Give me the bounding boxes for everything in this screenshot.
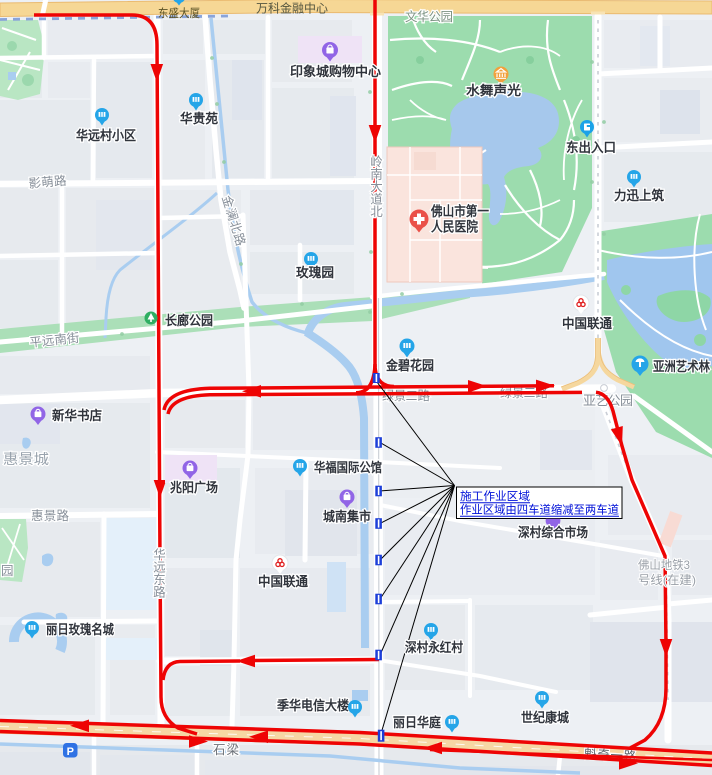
- svg-text:P: P: [67, 746, 74, 758]
- svg-text:东盛大厦: 东盛大厦: [158, 6, 200, 20]
- svg-text:园: 园: [1, 564, 14, 578]
- svg-text:金碧花园: 金碧花园: [385, 358, 434, 373]
- svg-text:华福国际公馆: 华福国际公馆: [314, 460, 382, 475]
- svg-text:华远东路: 华远东路: [151, 547, 165, 599]
- svg-text:丽日玫瑰名城: 丽日玫瑰名城: [46, 622, 114, 637]
- svg-text:亚洲艺术林: 亚洲艺术林: [653, 359, 710, 374]
- svg-text:水舞声光: 水舞声光: [466, 83, 521, 98]
- svg-text:东出入口: 东出入口: [566, 140, 616, 155]
- svg-text:新华书店: 新华书店: [52, 408, 102, 423]
- svg-text:深村永红村: 深村永红村: [405, 640, 463, 655]
- svg-text:中国联通: 中国联通: [562, 316, 612, 331]
- svg-text:施工作业区域: 施工作业区域: [460, 490, 530, 503]
- svg-text:惠景城: 惠景城: [3, 451, 49, 467]
- svg-text:佛山地铁3: 佛山地铁3: [638, 558, 690, 572]
- svg-text:城南集市: 城南集市: [323, 509, 371, 524]
- svg-text:中国联通: 中国联通: [258, 574, 308, 589]
- svg-text:石梁: 石梁: [213, 742, 239, 757]
- svg-text:岭南大道北: 岭南大道北: [368, 155, 382, 218]
- svg-text:绿景二路: 绿景二路: [382, 388, 430, 403]
- svg-text:丽日华庭: 丽日华庭: [393, 715, 442, 730]
- svg-text:世纪康城: 世纪康城: [521, 710, 569, 725]
- svg-text:号线(在建): 号线(在建): [638, 573, 696, 587]
- svg-text:兆阳广场: 兆阳广场: [170, 480, 218, 495]
- svg-text:深村综合市场: 深村综合市场: [518, 525, 588, 540]
- svg-text:华远村小区: 华远村小区: [76, 128, 136, 143]
- svg-text:华贵苑: 华贵苑: [180, 111, 218, 126]
- svg-text:长廊公园: 长廊公园: [165, 313, 213, 328]
- svg-text:玫瑰园: 玫瑰园: [296, 265, 334, 280]
- svg-text:文华公园: 文华公园: [405, 9, 453, 24]
- svg-text:佛山市第一: 佛山市第一: [430, 203, 489, 219]
- svg-text:人民医院: 人民医院: [431, 219, 478, 235]
- svg-text:作业区域由四车道缩减至两车道: 作业区域由四车道缩减至两车道: [460, 502, 619, 516]
- svg-text:惠景路: 惠景路: [31, 508, 69, 523]
- svg-text:万科金融中心: 万科金融中心: [256, 1, 328, 16]
- svg-text:印象城购物中心: 印象城购物中心: [290, 64, 381, 79]
- svg-text:季华电信大楼: 季华电信大楼: [276, 698, 349, 713]
- svg-text:力迅上筑: 力迅上筑: [614, 188, 664, 203]
